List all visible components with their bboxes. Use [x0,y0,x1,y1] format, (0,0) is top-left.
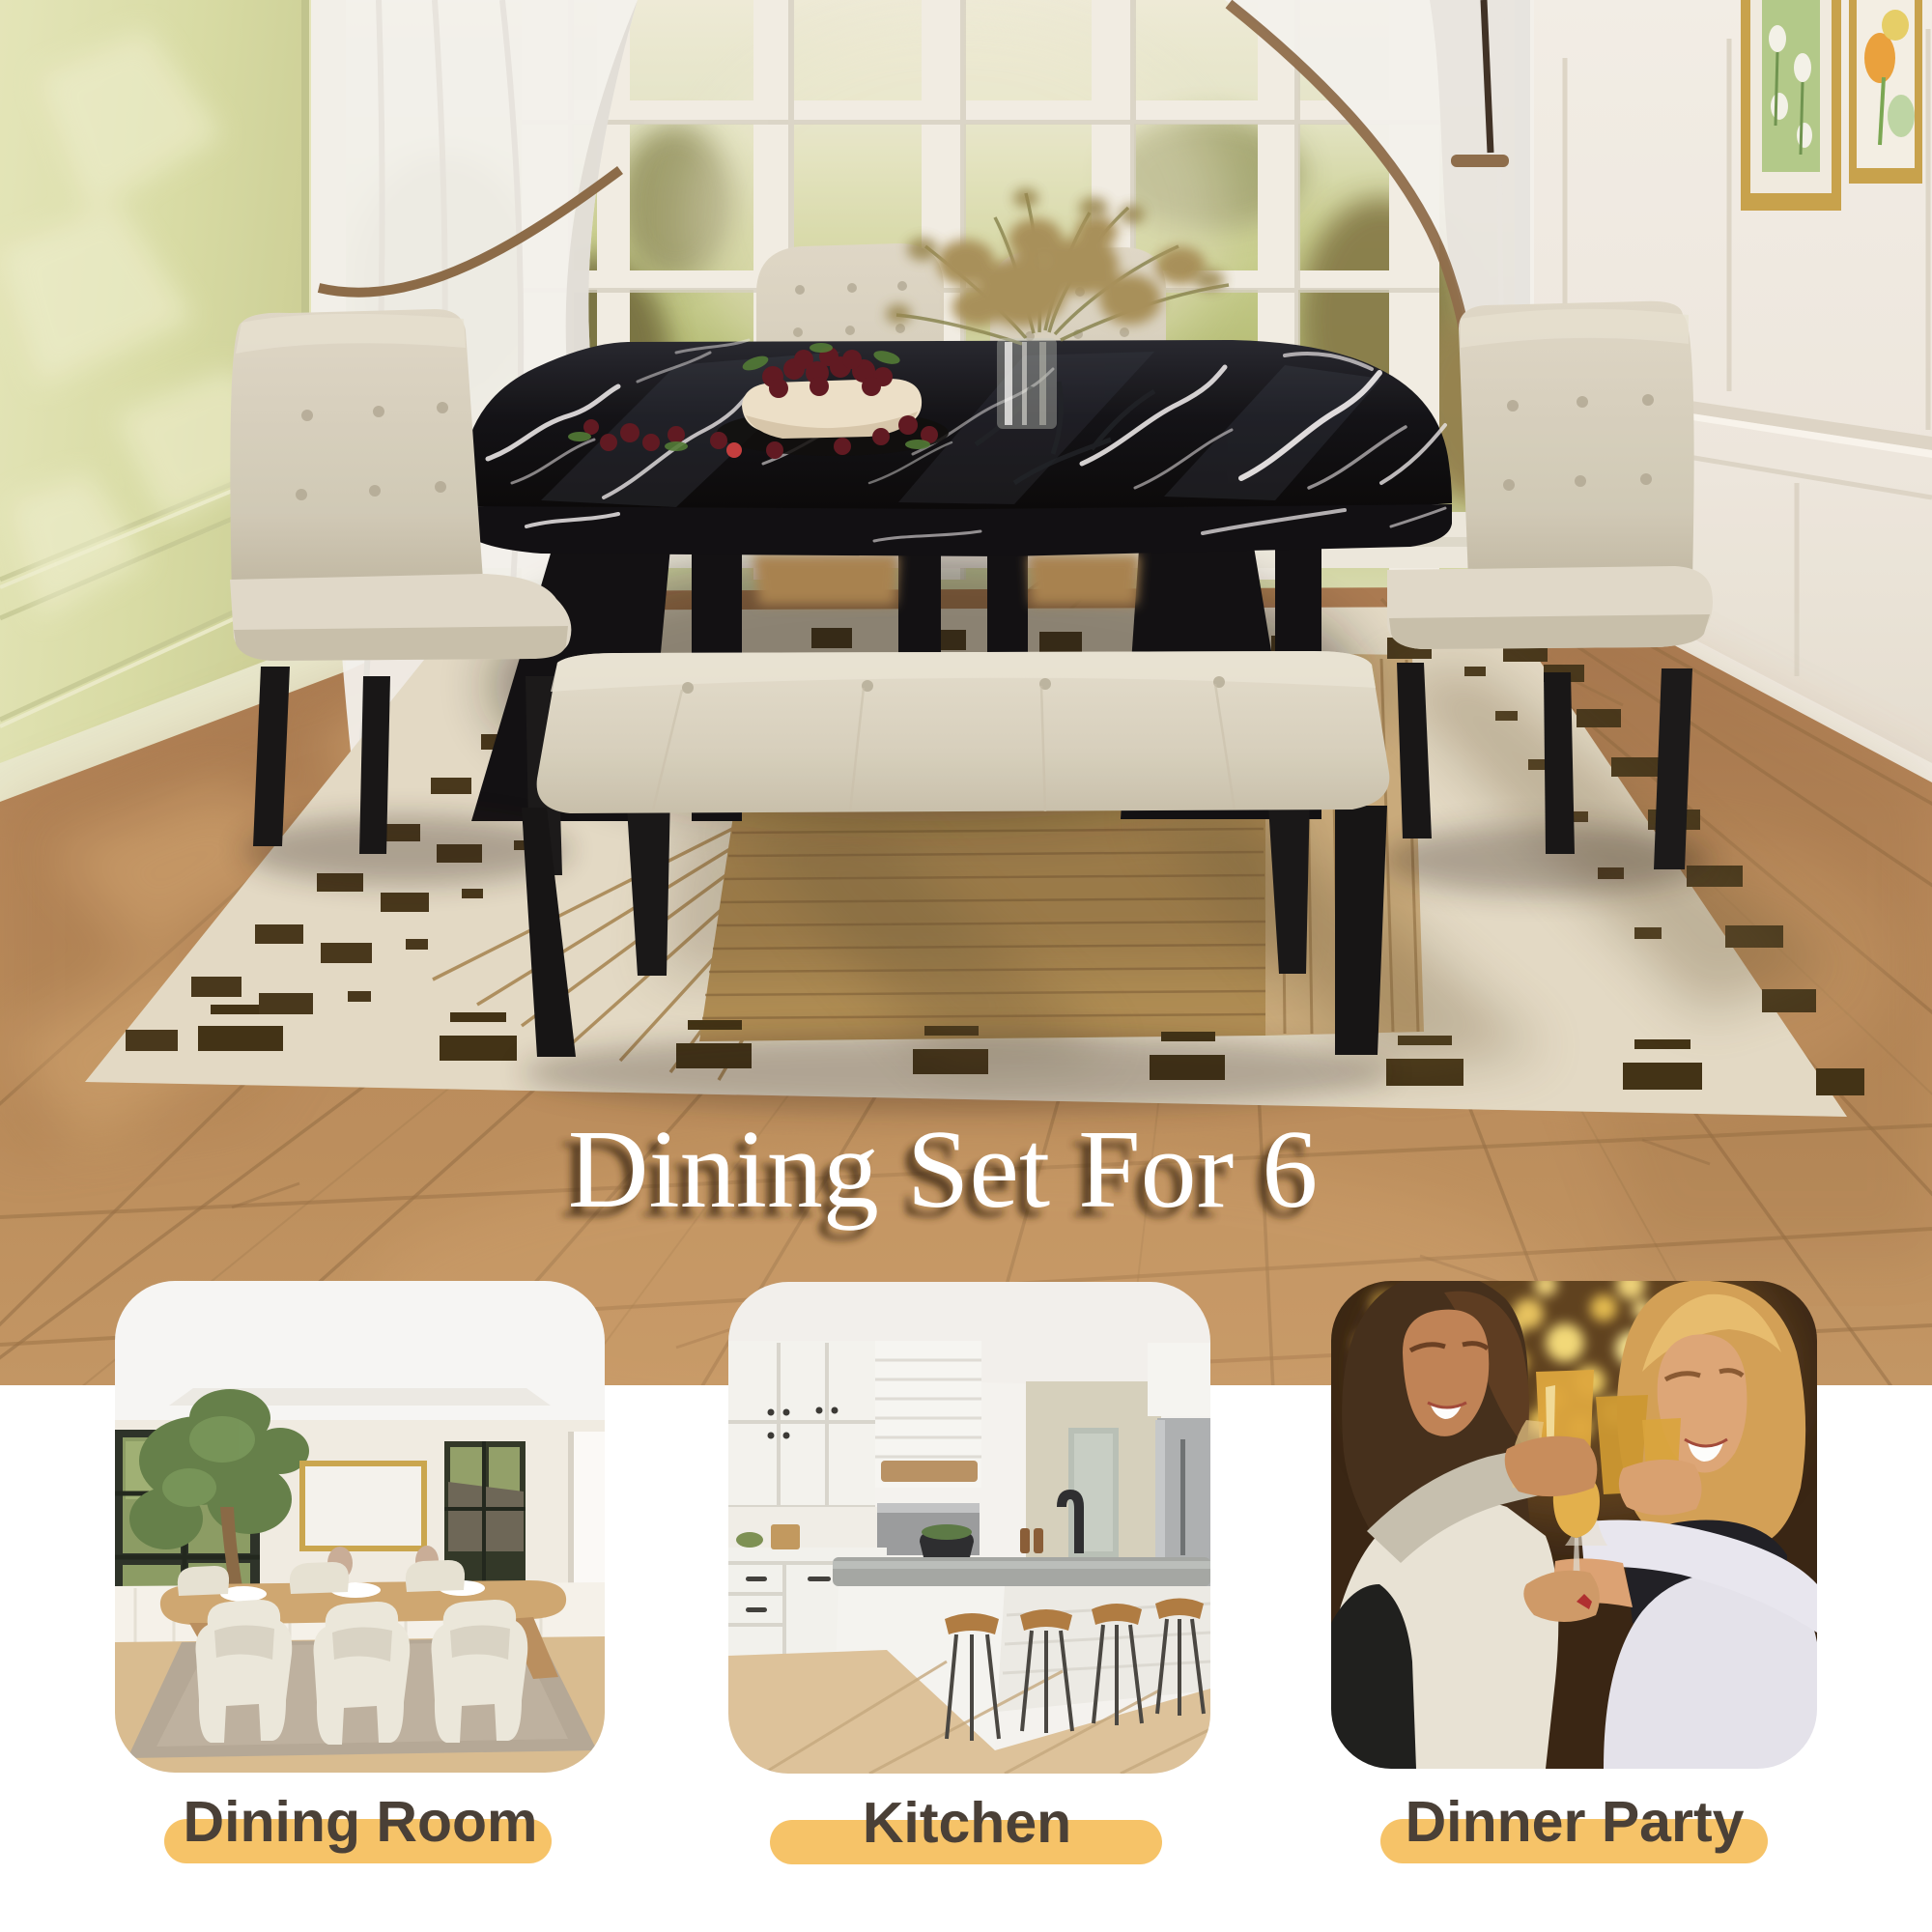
svg-text:Dining Set For 6: Dining Set For 6 [568,1108,1319,1232]
svg-text:Dining Room: Dining Room [183,1790,537,1854]
svg-text:Kitchen: Kitchen [863,1791,1071,1855]
svg-text:Dinner Party: Dinner Party [1406,1790,1745,1854]
